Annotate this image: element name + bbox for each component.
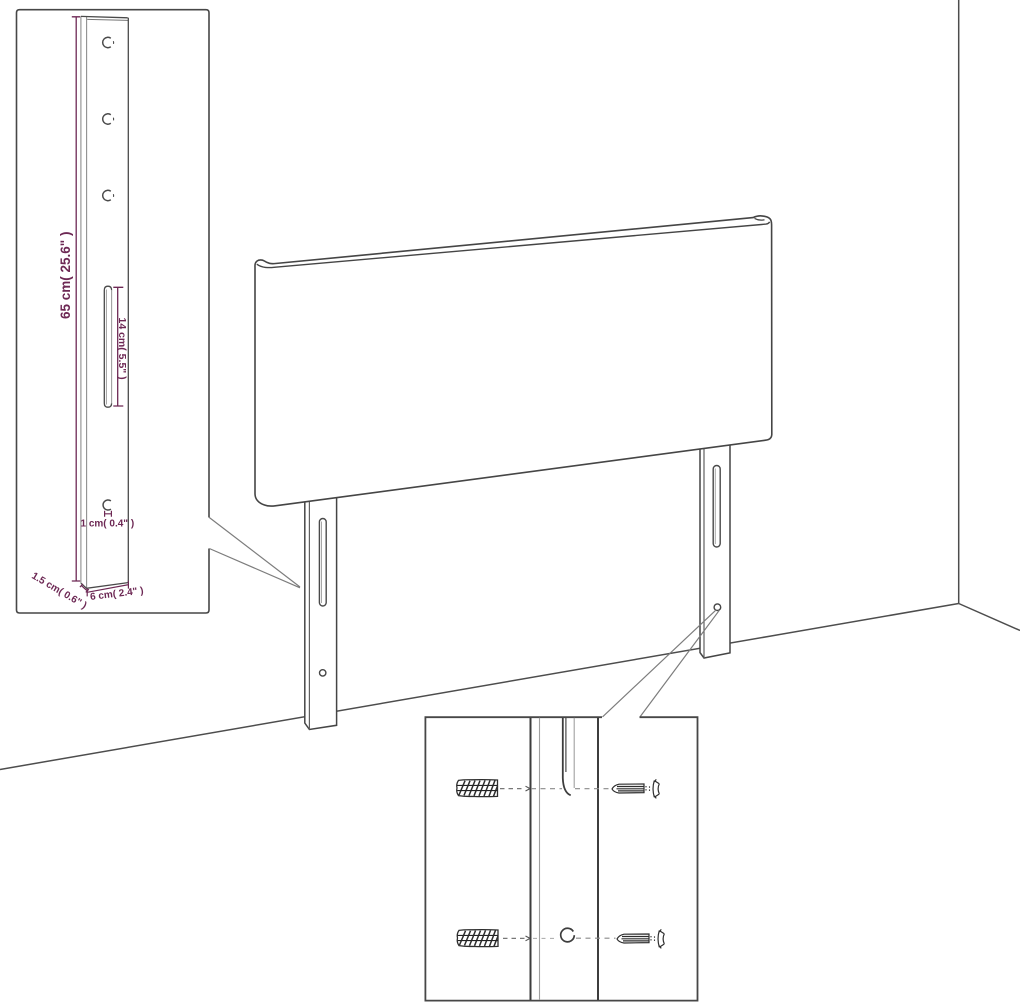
svg-text:65 cm( 25.6" ): 65 cm( 25.6" ) xyxy=(58,232,73,319)
svg-text:1 cm( 0.4" ): 1 cm( 0.4" ) xyxy=(81,519,135,530)
svg-text:14 cm( 5.5" ): 14 cm( 5.5" ) xyxy=(116,318,128,380)
svg-text:6 cm( 2.4" ): 6 cm( 2.4" ) xyxy=(90,586,145,603)
svg-text:1.5 cm( 0.6" ): 1.5 cm( 0.6" ) xyxy=(29,571,88,612)
